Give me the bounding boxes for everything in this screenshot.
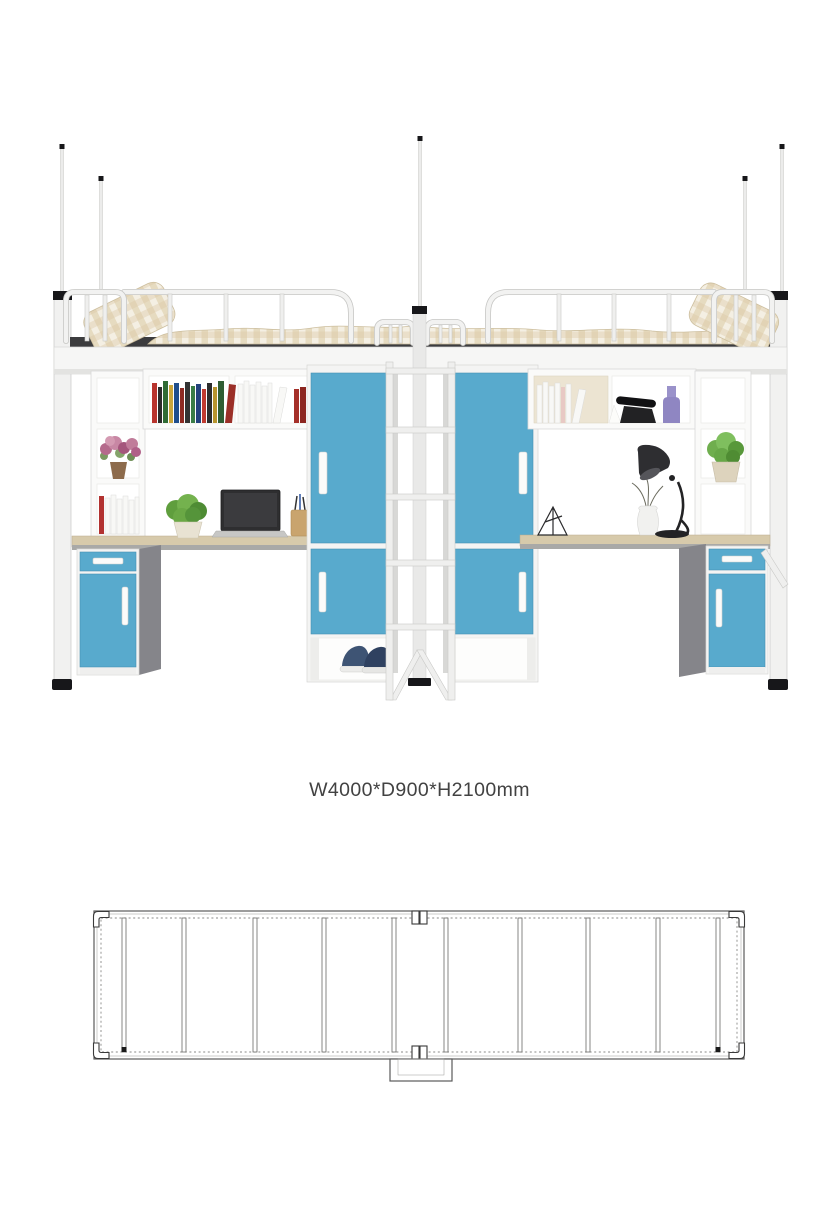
plan-ladder — [390, 1059, 452, 1081]
ladder-rung — [386, 427, 455, 433]
books-white-stack — [99, 495, 139, 534]
ladder-rung — [386, 560, 455, 566]
plan-view-drawing — [94, 911, 745, 1081]
wardrobe-left — [307, 365, 392, 682]
door-handle — [716, 589, 722, 627]
dimensions-label: W4000*D900*H2100mm — [0, 779, 839, 802]
furniture-render-3d — [52, 136, 788, 700]
wire-decor — [538, 507, 567, 535]
shelf-overhead-left — [143, 369, 315, 429]
drawer-cabinet-left — [77, 545, 161, 675]
vase-with-twigs — [632, 477, 663, 535]
product-image — [0, 0, 839, 1211]
ladder-rung — [386, 624, 455, 630]
books-colorful — [152, 381, 236, 423]
pen-holder — [291, 494, 309, 536]
product-sheet: W4000*D900*H2100mm — [0, 0, 839, 1211]
desk-plant — [166, 494, 207, 538]
wardrobe-right — [449, 365, 538, 682]
door-handle — [122, 587, 128, 625]
drawer-handle — [722, 556, 752, 562]
drawer-handle — [93, 558, 123, 564]
shelf-tall-right — [695, 371, 751, 553]
mosquito-net-poles — [60, 136, 785, 310]
ladder-rung — [386, 494, 455, 500]
shelf-tall-left — [91, 371, 145, 553]
laptop — [212, 490, 288, 537]
ladder-rung — [386, 368, 455, 374]
shelf-overhead-right — [528, 369, 696, 429]
